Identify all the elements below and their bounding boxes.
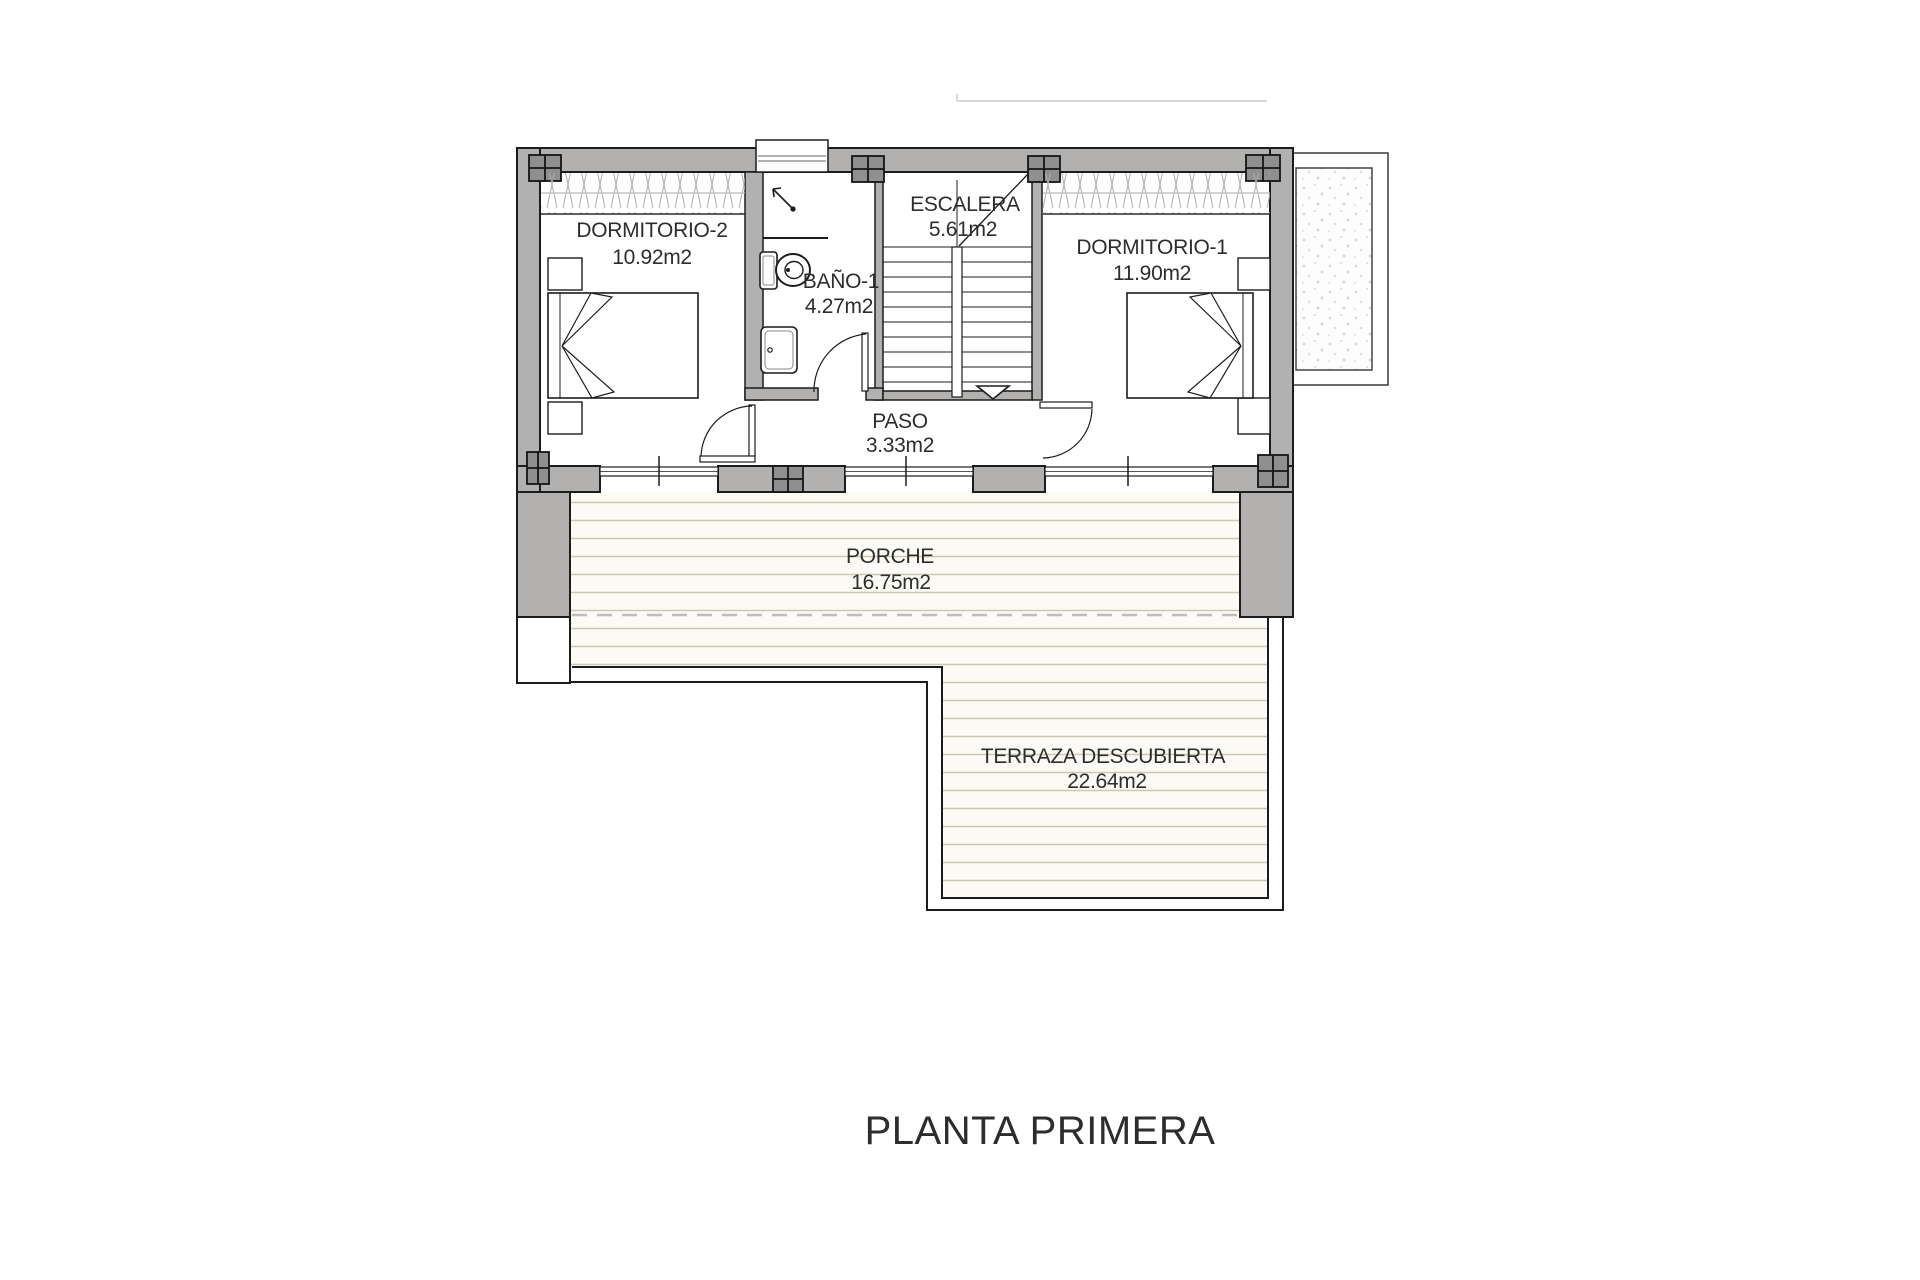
room-label-dormitorio-2: DORMITORIO-2 (576, 219, 727, 242)
dormitorio-2-door (700, 405, 755, 462)
room-label-terraza: TERRAZA DESCUBIERTA (981, 745, 1226, 768)
window (845, 456, 973, 486)
bed-dormitorio-2 (548, 258, 698, 434)
room-area-porche: 16.75m2 (851, 571, 931, 594)
pillar (852, 156, 884, 182)
room-label-bano-1: BAÑO-1 (803, 269, 879, 293)
room-label-escalera: ESCALERA (910, 193, 1020, 216)
room-label-paso: PASO (872, 410, 928, 433)
room-label-dormitorio-1: DORMITORIO-1 (1076, 236, 1227, 259)
pillar (773, 466, 803, 492)
plan-title: PLANTA PRIMERA (865, 1109, 1216, 1153)
room-area-bano-1: 4.27m2 (805, 295, 873, 318)
shower-icon (773, 188, 796, 212)
closet-dormitorio-2 (541, 173, 745, 214)
window (1045, 456, 1213, 486)
windows (600, 456, 1213, 486)
faint-reference-line (957, 94, 1267, 101)
sink-icon (761, 327, 797, 373)
bathroom-door (814, 333, 868, 392)
room-area-paso: 3.33m2 (866, 434, 934, 457)
room-area-escalera: 5.61m2 (929, 218, 997, 241)
closet-dormitorio-1 (1043, 173, 1270, 214)
room-area-terraza: 22.64m2 (1067, 770, 1147, 793)
room-area-dormitorio-2: 10.92m2 (612, 246, 692, 269)
pillar (1258, 455, 1288, 487)
room-label-porche: PORCHE (846, 545, 934, 568)
porch-left-footing (517, 617, 570, 683)
dormitorio-1-door (1040, 402, 1092, 458)
bathroom-window-top (756, 140, 828, 172)
floor-plan-svg: DORMITORIO-2 10.92m2 BAÑO-1 4.27m2 ESCAL… (0, 0, 1920, 1280)
balcony-right (1293, 153, 1388, 385)
room-area-dormitorio-1: 11.90m2 (1113, 262, 1191, 285)
floor-plan-page: DORMITORIO-2 10.92m2 BAÑO-1 4.27m2 ESCAL… (0, 0, 1920, 1280)
pillar (527, 452, 549, 484)
